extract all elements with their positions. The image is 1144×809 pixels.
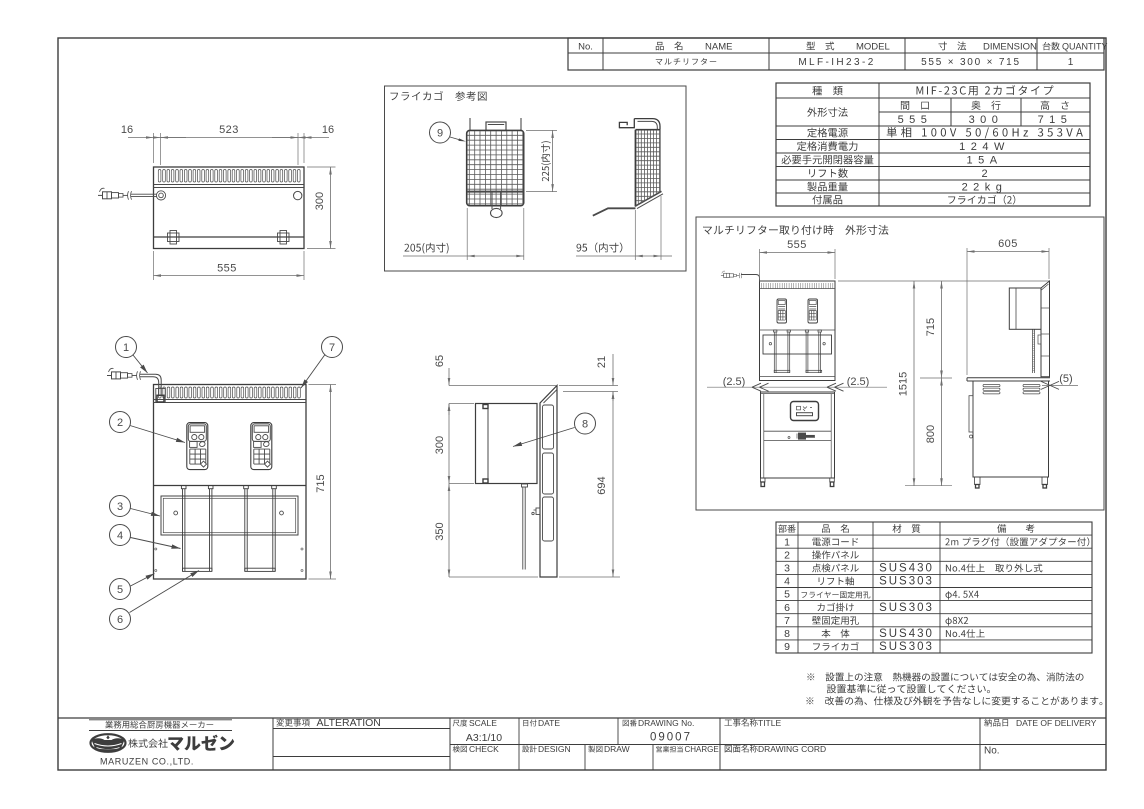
svg-text:715: 715 — [315, 474, 327, 492]
svg-text:1: 1 — [784, 536, 790, 548]
svg-text:DRAWING CORD: DRAWING CORD — [758, 744, 826, 754]
svg-text:No.: No. — [578, 42, 593, 53]
svg-text:MODEL: MODEL — [856, 42, 890, 53]
svg-text:ALTERATION: ALTERATION — [317, 717, 381, 729]
svg-text:523: 523 — [219, 124, 239, 136]
svg-text:605: 605 — [998, 238, 1018, 250]
svg-text:300: 300 — [434, 436, 446, 454]
svg-text:350: 350 — [434, 522, 446, 540]
svg-text:DIMENSION: DIMENSION — [983, 42, 1037, 53]
svg-text:800: 800 — [925, 425, 937, 443]
svg-text:694: 694 — [596, 476, 608, 494]
svg-text:(5): (5) — [1059, 373, 1072, 385]
svg-text:MLF-IH23-2: MLF-IH23-2 — [798, 57, 875, 68]
svg-text:CHARGE: CHARGE — [685, 745, 719, 754]
svg-text:1: 1 — [1068, 57, 1074, 68]
svg-text:16: 16 — [322, 124, 334, 136]
svg-text:300: 300 — [969, 114, 1004, 126]
svg-text:1: 1 — [123, 342, 129, 354]
svg-text:555: 555 — [217, 263, 237, 275]
svg-text:5: 5 — [117, 584, 123, 596]
svg-text:SUS430: SUS430 — [879, 563, 934, 575]
svg-text:2: 2 — [981, 168, 987, 180]
svg-text:2: 2 — [117, 417, 123, 429]
svg-text:555: 555 — [787, 239, 807, 251]
svg-text:TITLE: TITLE — [758, 718, 781, 728]
svg-text:DATE OF DELIVERY: DATE OF DELIVERY — [1016, 718, 1097, 728]
svg-text:9: 9 — [437, 128, 443, 140]
svg-text:21: 21 — [596, 356, 608, 368]
svg-text:DESIGN: DESIGN — [538, 744, 571, 754]
svg-text:6: 6 — [117, 614, 123, 626]
svg-text:QUANTITY: QUANTITY — [1062, 42, 1108, 52]
svg-text:3: 3 — [784, 563, 790, 575]
svg-text:SUS303: SUS303 — [879, 576, 934, 588]
svg-text:7: 7 — [784, 615, 790, 627]
svg-text:8: 8 — [582, 419, 588, 431]
svg-text:4: 4 — [784, 576, 790, 588]
svg-text:09007: 09007 — [650, 732, 692, 744]
svg-text:DATE: DATE — [538, 718, 560, 728]
svg-text:SUS303: SUS303 — [879, 602, 934, 614]
svg-text:6: 6 — [784, 602, 790, 614]
svg-text:DRAW: DRAW — [604, 744, 630, 754]
svg-text:1515: 1515 — [898, 372, 910, 396]
svg-text:2: 2 — [784, 549, 790, 561]
svg-text:300: 300 — [314, 192, 326, 210]
svg-text:8: 8 — [784, 628, 790, 640]
svg-text:MARUZEN CO.,LTD.: MARUZEN CO.,LTD. — [100, 757, 194, 767]
svg-text:4: 4 — [117, 530, 123, 542]
svg-text:5: 5 — [784, 589, 790, 601]
svg-text:DRAWING No.: DRAWING No. — [638, 718, 694, 728]
svg-text:22kg: 22kg — [962, 182, 1008, 194]
svg-text:15A: 15A — [966, 155, 1002, 167]
svg-text:9: 9 — [784, 641, 790, 653]
svg-text:A3:1/10: A3:1/10 — [466, 732, 502, 744]
svg-text:SCALE: SCALE — [469, 718, 497, 728]
svg-text:No.: No. — [984, 746, 1000, 757]
svg-text:CHECK: CHECK — [469, 744, 499, 754]
svg-text:555: 555 — [898, 114, 933, 126]
svg-text:3: 3 — [117, 501, 123, 513]
svg-text:124W: 124W — [959, 141, 1010, 153]
svg-text:16: 16 — [121, 124, 133, 136]
svg-text:NAME: NAME — [705, 42, 732, 53]
svg-text:715: 715 — [925, 318, 937, 336]
svg-text:555 × 300 × 715: 555 × 300 × 715 — [921, 57, 1021, 68]
svg-text:SUS303: SUS303 — [879, 641, 934, 653]
svg-text:SUS430: SUS430 — [879, 628, 934, 640]
svg-text:7: 7 — [329, 342, 335, 354]
svg-text:65: 65 — [434, 355, 446, 367]
svg-text:(2.5): (2.5) — [723, 376, 746, 388]
svg-text:(2.5): (2.5) — [847, 376, 870, 388]
svg-text:715: 715 — [1038, 114, 1073, 126]
